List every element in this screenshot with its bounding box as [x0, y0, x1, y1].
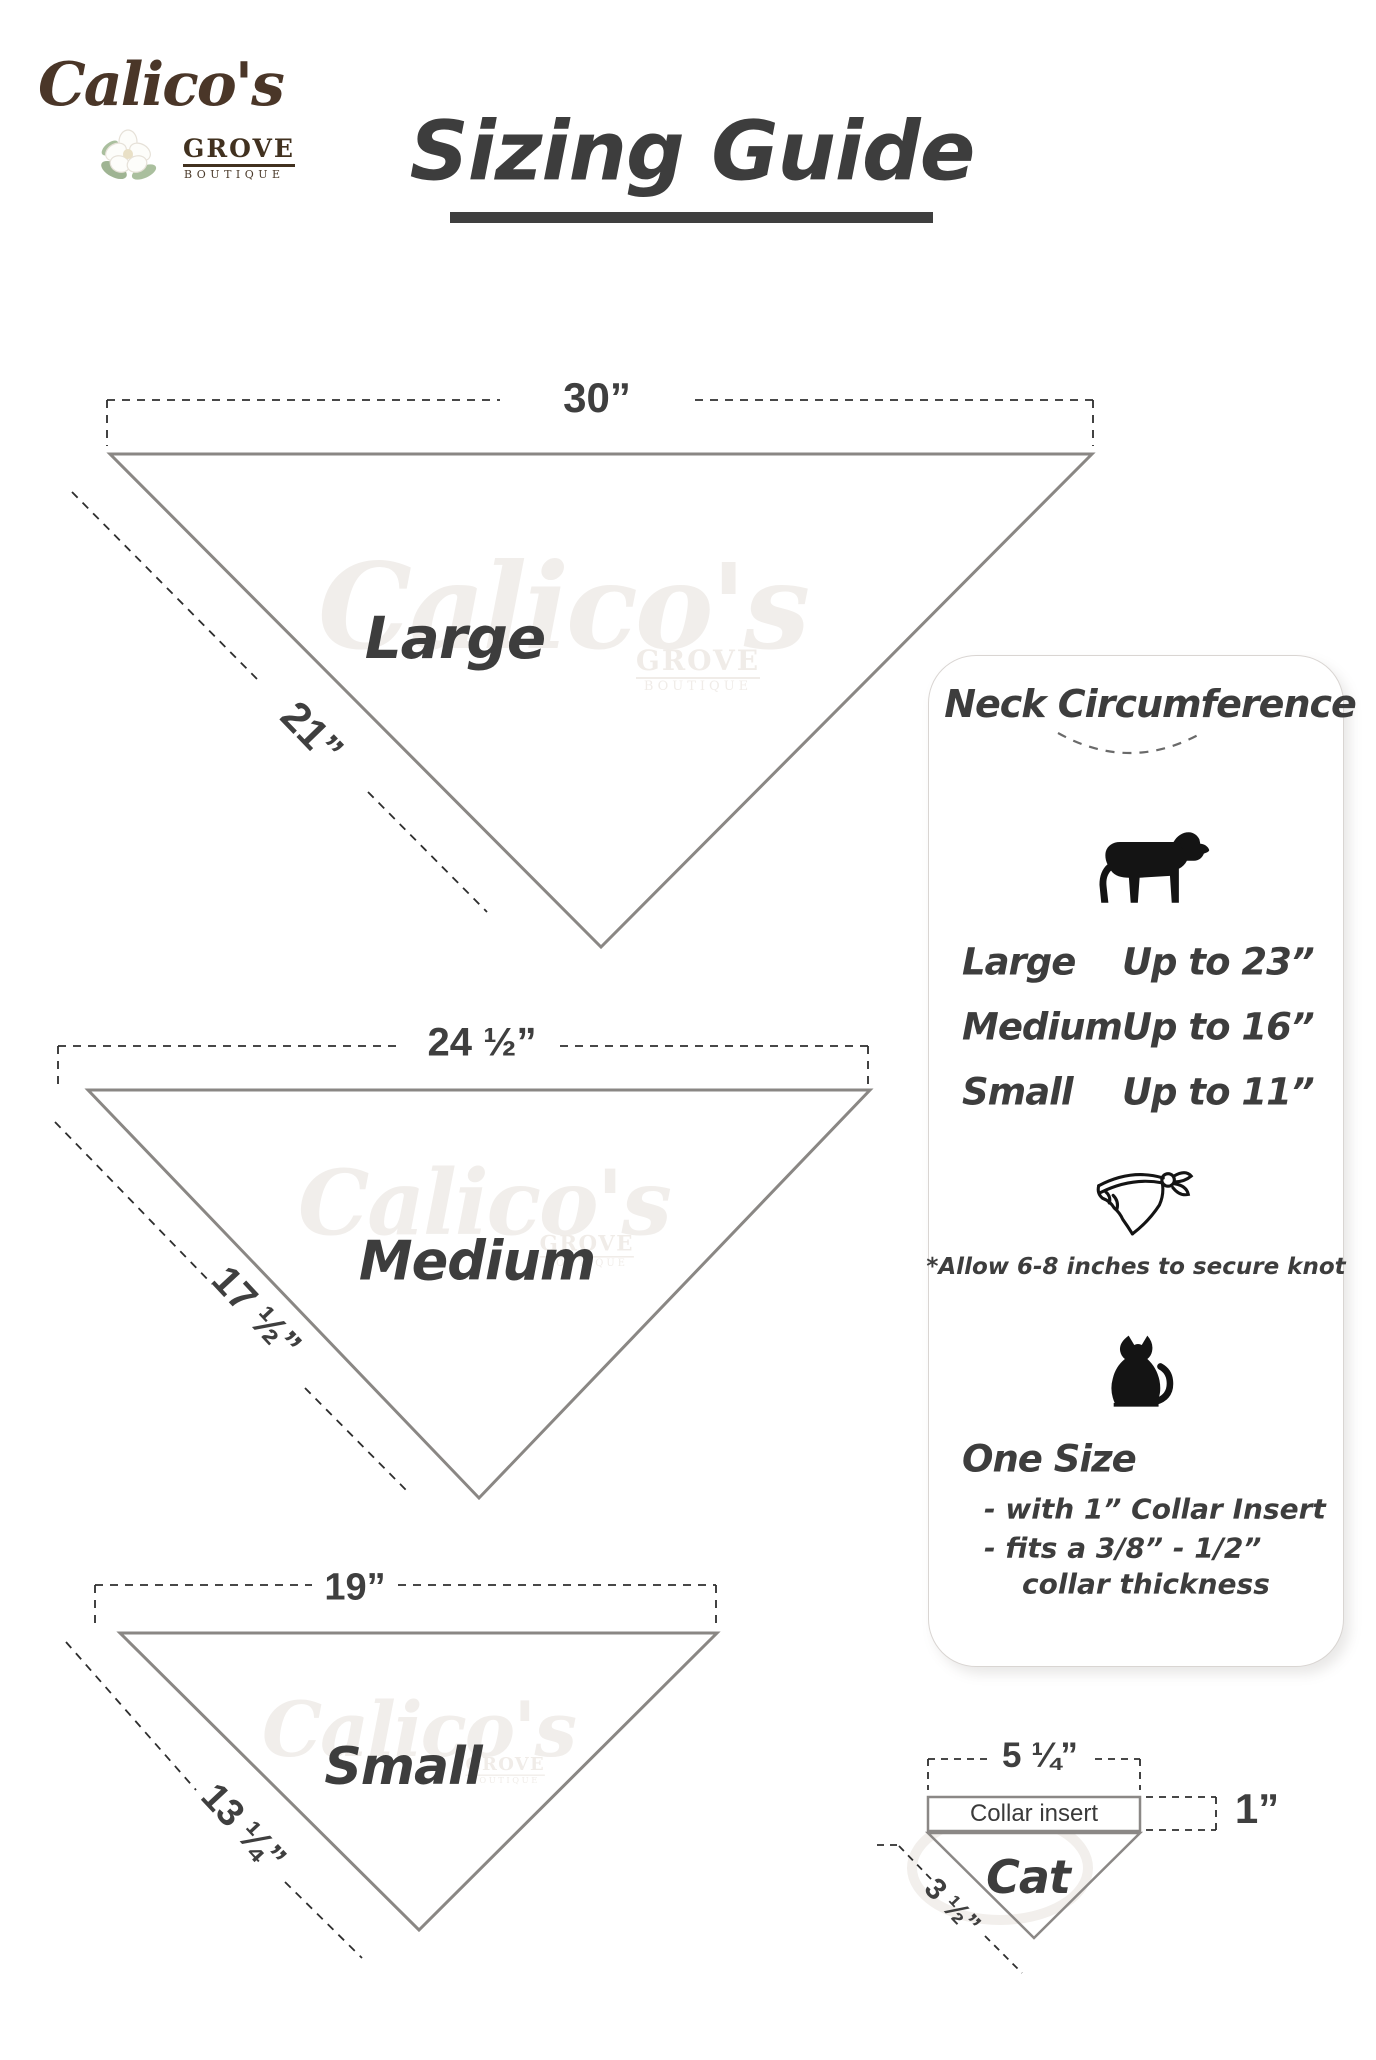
page-title: Sizing Guide	[410, 105, 975, 200]
one-size-heading: One Size	[962, 1438, 1136, 1481]
medium-triangle	[88, 1090, 870, 1498]
bandana-icon	[1091, 1163, 1197, 1247]
sizing-guide-page: Calico's GROVE BOUTIQUE Calico's GROVE B…	[0, 0, 1376, 2060]
collar-insert-label: Collar insert	[970, 1800, 1098, 1828]
small-top-measurement: 19”	[324, 1567, 385, 1610]
cat-top-measurement: 5 ¼”	[1002, 1736, 1078, 1776]
row-large-size: Large	[962, 941, 1075, 984]
cat-icon	[1099, 1330, 1177, 1416]
title-underline	[450, 212, 933, 223]
medium-size-label: Medium	[359, 1230, 595, 1293]
one-size-line2: - fits a 3/8” - 1/2”	[984, 1532, 1261, 1565]
row-large-value: Up to 23”	[1122, 941, 1314, 984]
neck-dashed-arc	[1058, 733, 1198, 753]
large-size-label: Large	[365, 604, 546, 672]
cat-size-label: Cat	[986, 1850, 1070, 1904]
panel-heading: Neck Circumference	[944, 682, 1356, 726]
large-top-measurement: 30”	[563, 374, 631, 422]
row-small-size: Small	[962, 1071, 1073, 1114]
collar-insert-height: 1”	[1235, 1785, 1279, 1833]
row-medium-size: Medium	[962, 1006, 1122, 1049]
logo-boutique: BOUTIQUE	[184, 168, 285, 181]
small-size-label: Small	[324, 1737, 481, 1797]
dog-icon	[1095, 821, 1211, 913]
large-measure-lines	[72, 400, 1093, 912]
knot-note: *Allow 6-8 inches to secure knot	[926, 1254, 1345, 1280]
row-small-value: Up to 11”	[1122, 1071, 1314, 1114]
one-size-line1: - with 1” Collar Insert	[984, 1493, 1326, 1526]
logo-grove: GROVE	[183, 134, 295, 167]
one-size-line3: collar thickness	[1022, 1568, 1270, 1601]
logo-brand: Calico's	[38, 50, 283, 120]
magnolia-flower-icon	[98, 126, 160, 186]
medium-top-measurement: 24 ½”	[428, 1021, 537, 1066]
row-medium-value: Up to 16”	[1122, 1006, 1314, 1049]
